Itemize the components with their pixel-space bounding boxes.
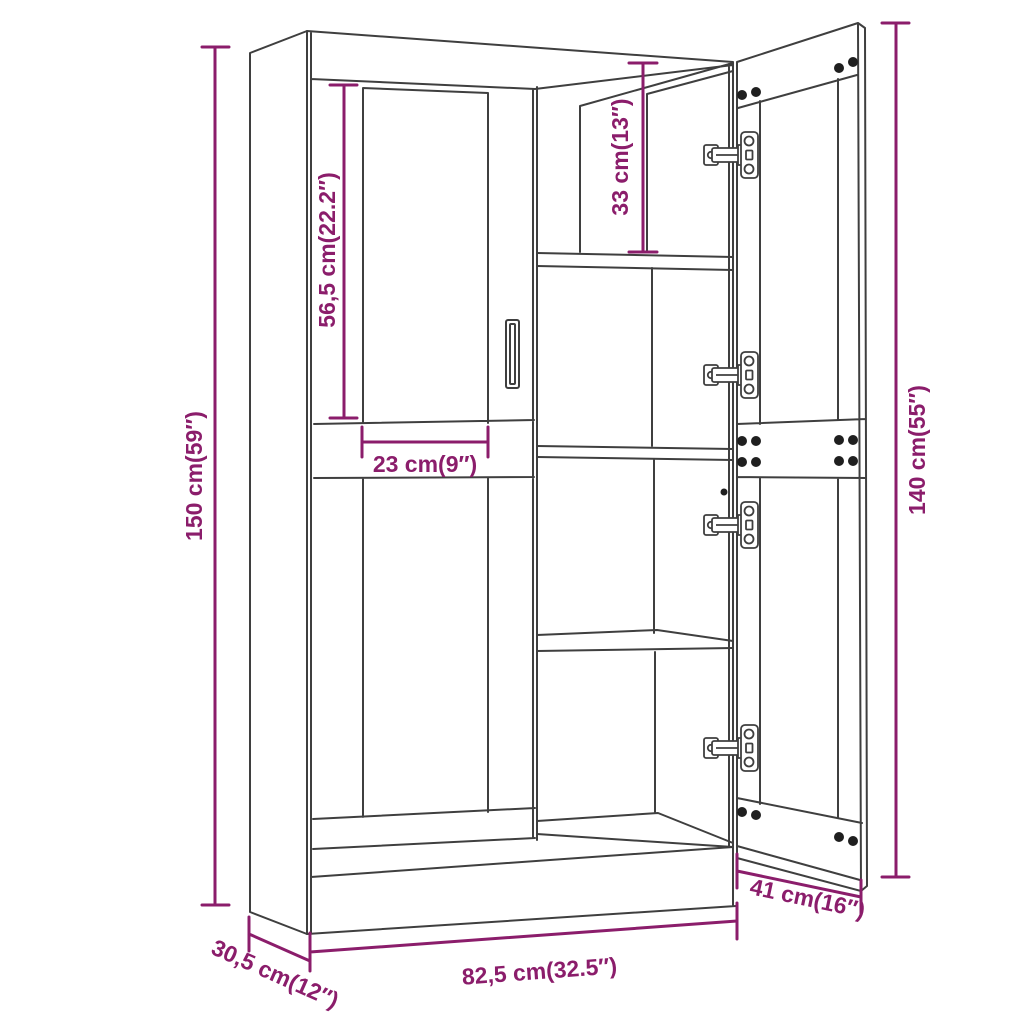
- diagram-background: [0, 0, 1024, 1024]
- cabinet-dimension-diagram: 150 cm(59″) 56,5 cm(22.2″) 33 cm(13″) 23…: [0, 0, 1024, 1024]
- upper-glass-height-label: 56,5 cm(22.2″): [314, 172, 340, 328]
- overall-height-label: 150 cm(59″): [181, 411, 207, 541]
- door-height-label: 140 cm(55″): [904, 385, 930, 515]
- top-compartment-height-label: 33 cm(13″): [607, 98, 633, 215]
- diagram-canvas: 150 cm(59″) 56,5 cm(22.2″) 33 cm(13″) 23…: [0, 0, 1024, 1024]
- door-glass-width-label: 23 cm(9″): [373, 451, 477, 477]
